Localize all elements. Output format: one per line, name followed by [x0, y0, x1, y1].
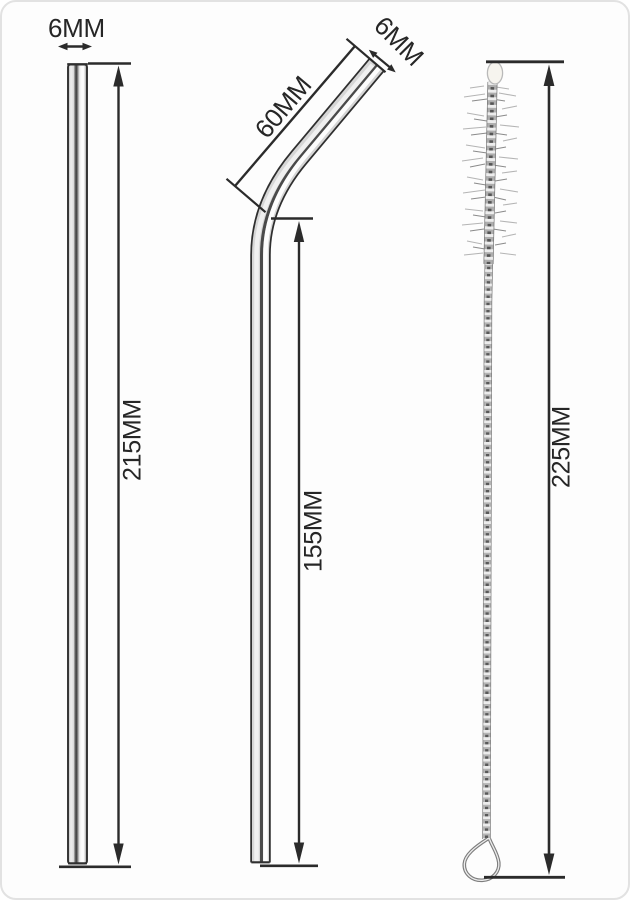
- brush-tip: [487, 62, 502, 84]
- arrowhead-down: [544, 854, 555, 876]
- width-arrow-right-head: [83, 43, 93, 50]
- straight-straw: [67, 64, 88, 863]
- bent-straw: [251, 65, 381, 863]
- bent-straw-highlight: [266, 65, 382, 863]
- bend-tick-bottom: [227, 179, 266, 212]
- arrowhead-down: [294, 843, 304, 864]
- product-diagram: 6MM 215MM 60MM 6MM 155MM 225MM: [0, 0, 630, 900]
- cleaning-brush: [462, 62, 519, 880]
- arrowhead-up: [544, 65, 555, 87]
- straight-straw-tube: [68, 65, 87, 864]
- arrowhead-up: [294, 221, 304, 242]
- label-bent-straw-length: 155MM: [302, 490, 327, 572]
- arrowhead-up: [113, 66, 123, 87]
- label-straight-straw-diameter: 6MM: [48, 15, 105, 41]
- brush-loop: [464, 839, 499, 880]
- label-brush-length: 225MM: [550, 406, 575, 488]
- label-straight-straw-length: 215MM: [121, 399, 146, 481]
- arrowhead-down: [113, 844, 123, 865]
- diagram-graphics: [2, 2, 630, 900]
- width-arrow-left-head: [58, 43, 68, 50]
- bent-straw-left-sheen: [257, 65, 373, 863]
